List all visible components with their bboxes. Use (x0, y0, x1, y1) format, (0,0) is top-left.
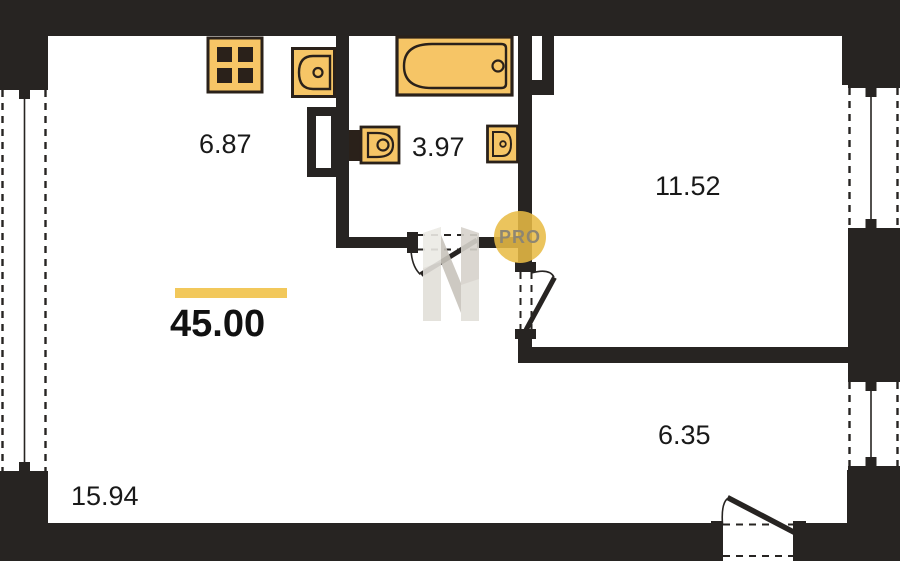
kitchen-sink-icon (293, 49, 335, 97)
vent-shaft-icon (312, 112, 336, 173)
bedroom-area-label: 11.52 (655, 171, 721, 202)
watermark-badge-text: PRO (494, 227, 546, 248)
toilet-icon (349, 127, 399, 163)
door-swing-icon-bedroom (521, 271, 555, 330)
bathtub-icon (397, 37, 512, 95)
window-icon-right-top (848, 84, 900, 232)
watermark-logo (423, 227, 479, 321)
window-icon-right-bottom (848, 378, 900, 470)
plan-graphics (0, 0, 900, 561)
window-icon-left (0, 86, 48, 475)
living-area-label: 15.94 (71, 481, 139, 512)
floor-plan: 6.87 3.97 11.52 6.35 15.94 45.00 PRO (0, 0, 900, 561)
stove-icon (208, 38, 262, 92)
washbasin-icon (488, 126, 518, 162)
hallway-area-label: 6.35 (658, 420, 711, 451)
total-area-label: 45.00 (170, 303, 265, 346)
door-swing-icon-entry (722, 498, 794, 557)
bathroom-area-label: 3.97 (412, 132, 465, 163)
total-area-underline (175, 288, 287, 298)
kitchen-area-label: 6.87 (199, 129, 252, 160)
